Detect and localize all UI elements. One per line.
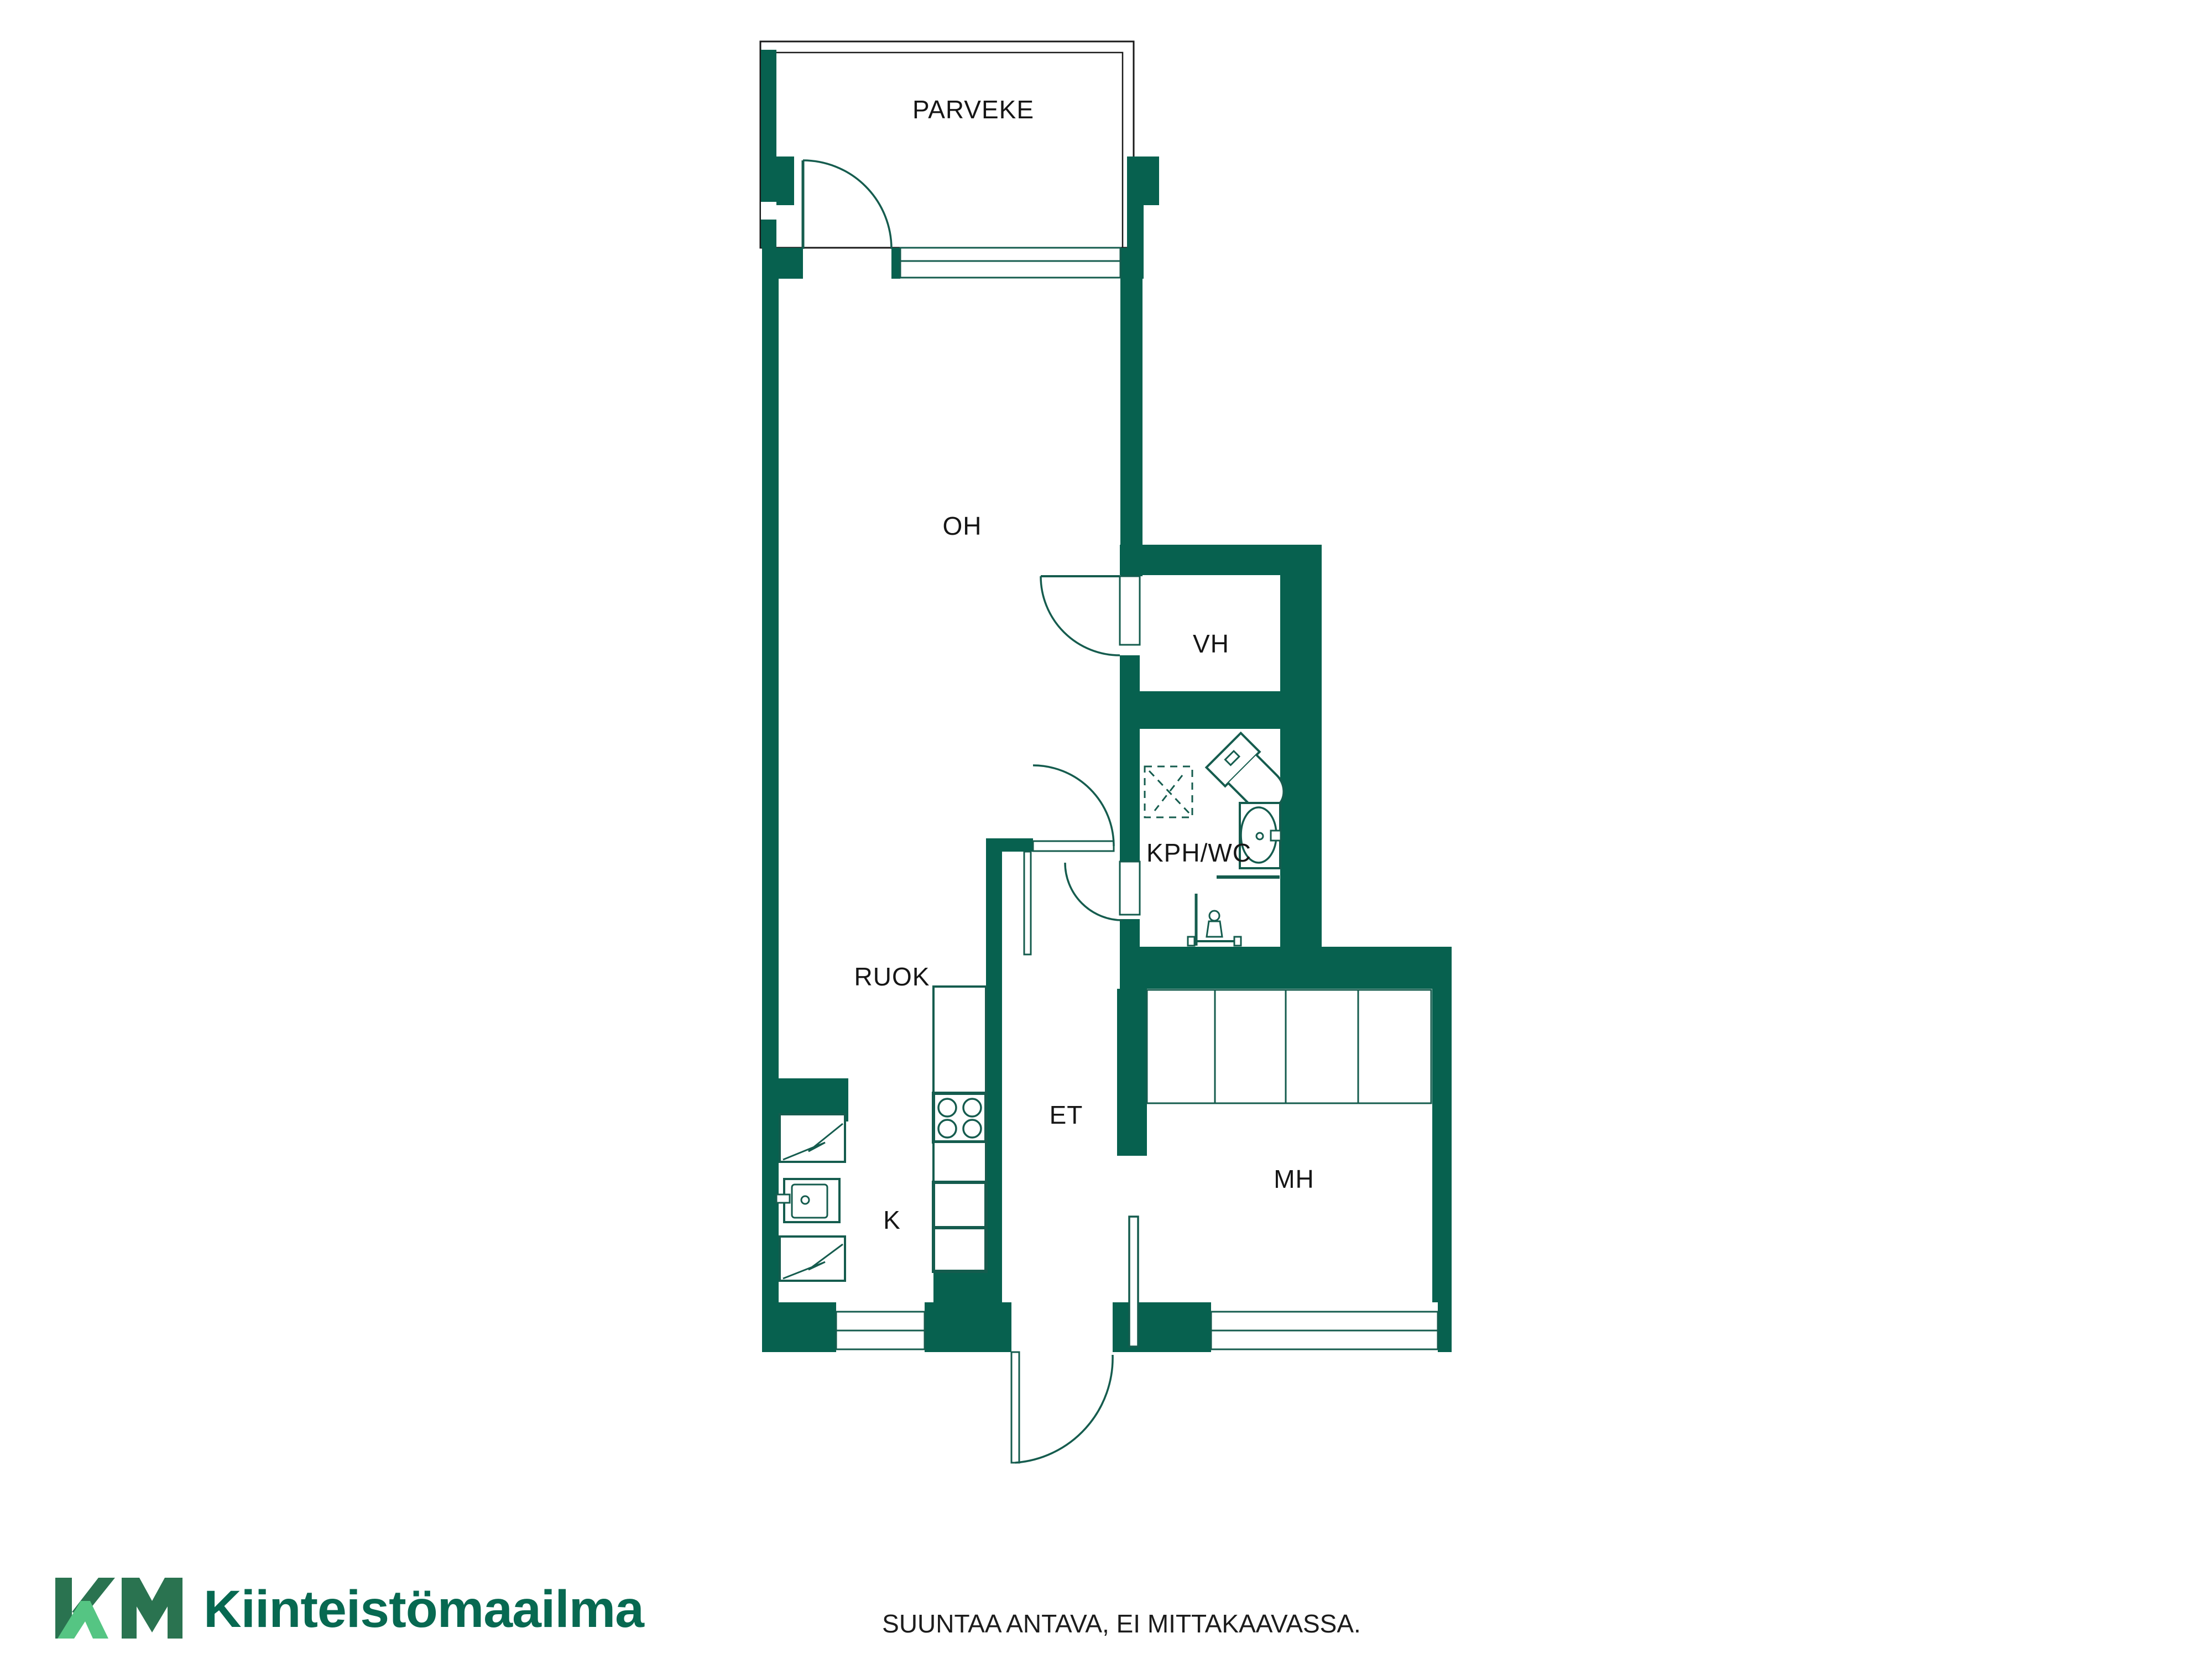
kitchen-cabinets bbox=[933, 987, 986, 1271]
room-label-mh: MH bbox=[1274, 1165, 1314, 1193]
fridge bbox=[933, 1228, 986, 1271]
bedroom-wardrobes bbox=[1147, 990, 1431, 1103]
disclaimer-text: SUUNTAA ANTAVA, EI MITTAKAAVASSA. bbox=[882, 1609, 1361, 1638]
wall bbox=[1120, 248, 1144, 279]
wall bbox=[933, 1271, 1002, 1302]
kitchen-counters bbox=[776, 1114, 845, 1281]
wall bbox=[1002, 838, 1033, 852]
hallway-door bbox=[1033, 765, 1114, 851]
wall-gap bbox=[761, 202, 776, 220]
wall bbox=[762, 248, 779, 1352]
room-label-vh: VH bbox=[1193, 629, 1229, 658]
room-label-ruok: RUOK bbox=[854, 962, 930, 991]
wall bbox=[1113, 1302, 1211, 1352]
kitchen-sink bbox=[776, 1179, 839, 1222]
room-label-oh: OH bbox=[943, 512, 982, 540]
wall bbox=[1117, 989, 1147, 1156]
wall bbox=[1120, 655, 1140, 862]
wall bbox=[1438, 1302, 1452, 1352]
plan-linework bbox=[776, 160, 1438, 1463]
wall bbox=[925, 1302, 1011, 1352]
balcony-window bbox=[900, 248, 1120, 278]
entrance-door bbox=[1011, 1352, 1113, 1463]
kitchen-window bbox=[836, 1312, 925, 1349]
wall bbox=[761, 156, 794, 205]
wall bbox=[1120, 947, 1452, 989]
wall bbox=[986, 838, 1002, 1302]
wall bbox=[776, 248, 803, 279]
bedroom-sliding-door bbox=[1129, 1217, 1138, 1347]
km-logo-icon bbox=[55, 1578, 182, 1639]
washing-machine-reservation bbox=[1145, 766, 1192, 817]
room-label-parveke: PARVEKE bbox=[912, 95, 1034, 124]
wall bbox=[1280, 545, 1322, 947]
bathroom-door bbox=[1065, 862, 1140, 920]
room-label-kph-wc: KPH/WC bbox=[1146, 838, 1251, 867]
wall bbox=[1432, 989, 1452, 1302]
footer: Kiinteistömaailma SUUNTAA ANTAVA, EI MIT… bbox=[55, 1578, 1361, 1639]
balcony-rect bbox=[760, 41, 1134, 248]
wall bbox=[1127, 156, 1159, 205]
wall bbox=[1120, 691, 1280, 729]
floorplan-drawing: PARVEKE OH VH KPH/WC RUOK ET K MH Kiinte… bbox=[0, 0, 2212, 1659]
balcony-outline bbox=[760, 41, 1134, 248]
floorplan-page: PARVEKE OH VH KPH/WC RUOK ET K MH Kiinte… bbox=[0, 0, 2212, 1659]
room-label-et: ET bbox=[1050, 1100, 1083, 1129]
closet-door bbox=[1041, 576, 1140, 655]
hall-wall-cap bbox=[1024, 852, 1031, 954]
wall bbox=[891, 248, 900, 279]
bedroom-window bbox=[1211, 1312, 1438, 1349]
wall bbox=[1120, 279, 1142, 576]
wall bbox=[777, 1302, 836, 1352]
room-label-k: K bbox=[883, 1206, 901, 1234]
brand-name: Kiinteistömaailma bbox=[204, 1580, 645, 1639]
